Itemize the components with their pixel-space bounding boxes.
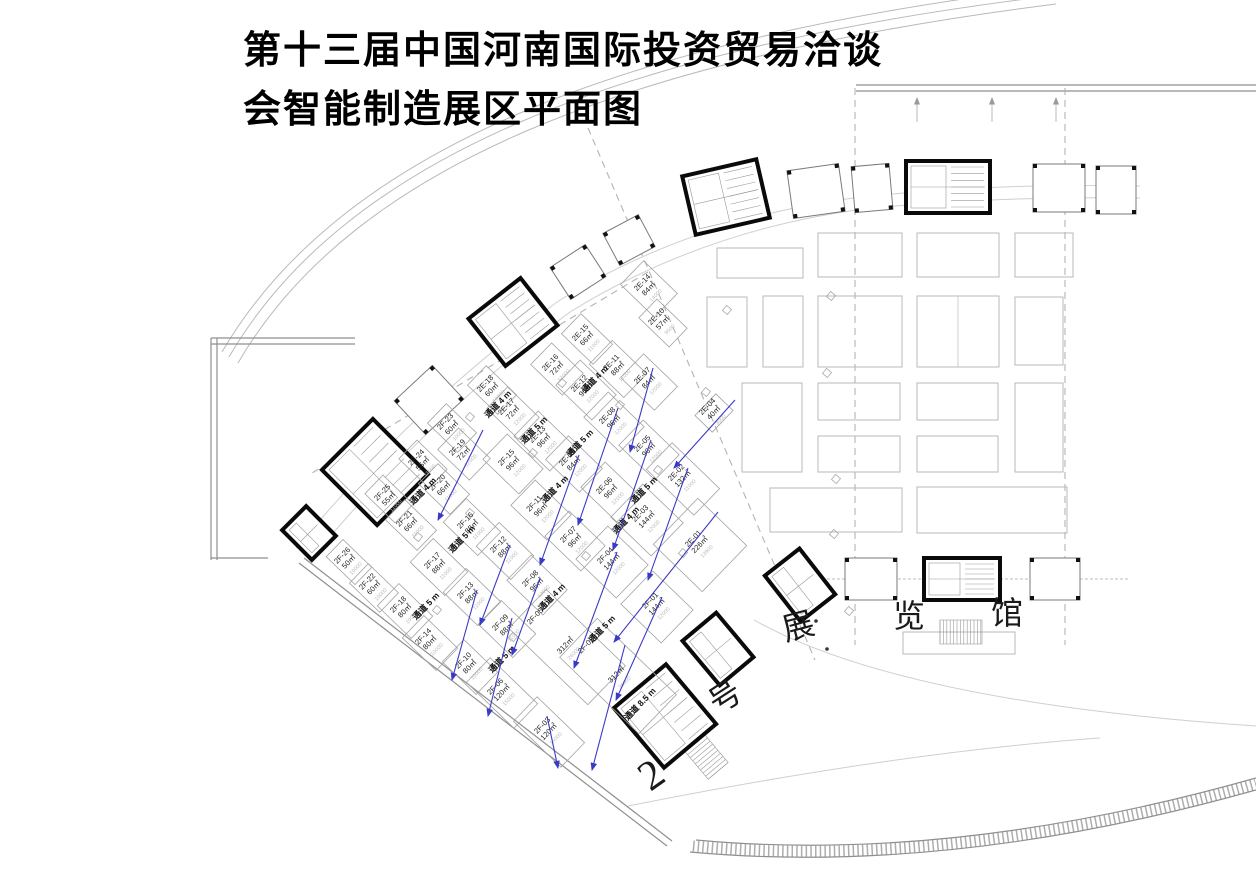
core-room	[845, 558, 897, 600]
core-room	[787, 164, 845, 219]
column-marker	[722, 305, 731, 314]
platform	[903, 632, 1015, 654]
column-marker	[465, 412, 474, 421]
core-room	[683, 613, 754, 686]
core-room	[682, 159, 770, 235]
plan-dot-2	[825, 647, 829, 651]
core-room	[469, 278, 558, 366]
booth-2E-04: 2E-0440㎡8000	[694, 392, 734, 432]
open-booth-area	[1015, 383, 1063, 472]
booth-2F-11: 2F-1196㎡12000	[511, 480, 571, 540]
booth-2E-15: 2E-1566㎡11000	[561, 314, 612, 365]
core-room	[906, 161, 990, 213]
column-marker	[822, 368, 831, 377]
floor-plan-page: 第十三届中国河南国际投资贸易洽谈 会智能制造展区平面图	[0, 0, 1256, 889]
booth-2F-03: 2F-03120㎡15000	[513, 697, 584, 767]
column-marker	[432, 605, 441, 614]
open-booth-area	[917, 233, 999, 277]
lower-left-wall	[299, 563, 667, 846]
core-room	[282, 506, 336, 560]
core-room	[603, 215, 655, 266]
open-booth-area	[818, 383, 900, 420]
open-booth-area	[1015, 233, 1073, 277]
bottom-facade-hatch	[693, 784, 1256, 851]
aisle-label: 通道 5 m	[564, 427, 595, 459]
title-line-1: 第十三届中国河南国际投资贸易洽谈	[243, 22, 883, 81]
column-marker	[829, 529, 838, 538]
open-booth-area	[717, 248, 803, 278]
hall-name-char: 馆	[991, 595, 1023, 631]
core-room	[550, 245, 606, 300]
core-room	[1030, 558, 1080, 600]
booth-2F-07: 2F-0796㎡12000	[545, 511, 605, 571]
open-booth-area	[818, 296, 902, 367]
title-line-2: 会智能制造展区平面图	[243, 81, 883, 140]
core-room	[1096, 166, 1136, 214]
open-booth-area	[917, 487, 1067, 533]
open-booth-area	[1015, 297, 1063, 365]
open-booth-area	[917, 383, 998, 420]
booth-2E-01: 2E-01226㎡13900	[653, 498, 746, 591]
booth-2F-05: 2F-05312㎡26000	[509, 589, 626, 704]
plaza-arc	[754, 620, 1256, 726]
plaza-edge	[628, 738, 1100, 806]
booth-2E-10: 2E-1057㎡9500	[639, 299, 687, 347]
booth-dimension: 26000	[618, 675, 633, 690]
core-room	[924, 558, 1000, 600]
open-booth-area	[707, 297, 747, 367]
open-booth-area	[742, 383, 802, 472]
column-marker	[581, 551, 590, 560]
page-title: 第十三届中国河南国际投资贸易洽谈 会智能制造展区平面图	[243, 22, 883, 140]
booth-2F-19: 2F-1972㎡12000	[438, 428, 490, 480]
open-booth-area	[763, 296, 803, 367]
plan-dot-1	[814, 619, 818, 623]
column-marker	[844, 606, 853, 615]
column-marker	[831, 474, 840, 483]
core-room	[851, 163, 893, 212]
open-booth-area	[770, 488, 902, 532]
aisle-label: 通道 5 m	[586, 613, 617, 645]
open-booth-area	[818, 436, 900, 472]
aisle-label: 通道 5 m	[628, 474, 659, 506]
booth-2F-13: 2F-1388㎡11000	[443, 568, 500, 625]
column-marker	[615, 400, 624, 409]
leader-arrow	[574, 552, 617, 668]
open-booth-area	[818, 233, 902, 277]
hall-name-char: 览	[893, 598, 925, 634]
leader-arrow	[480, 545, 510, 625]
column-marker	[701, 387, 710, 396]
core-room	[1033, 164, 1085, 212]
open-booth-area	[917, 436, 998, 472]
